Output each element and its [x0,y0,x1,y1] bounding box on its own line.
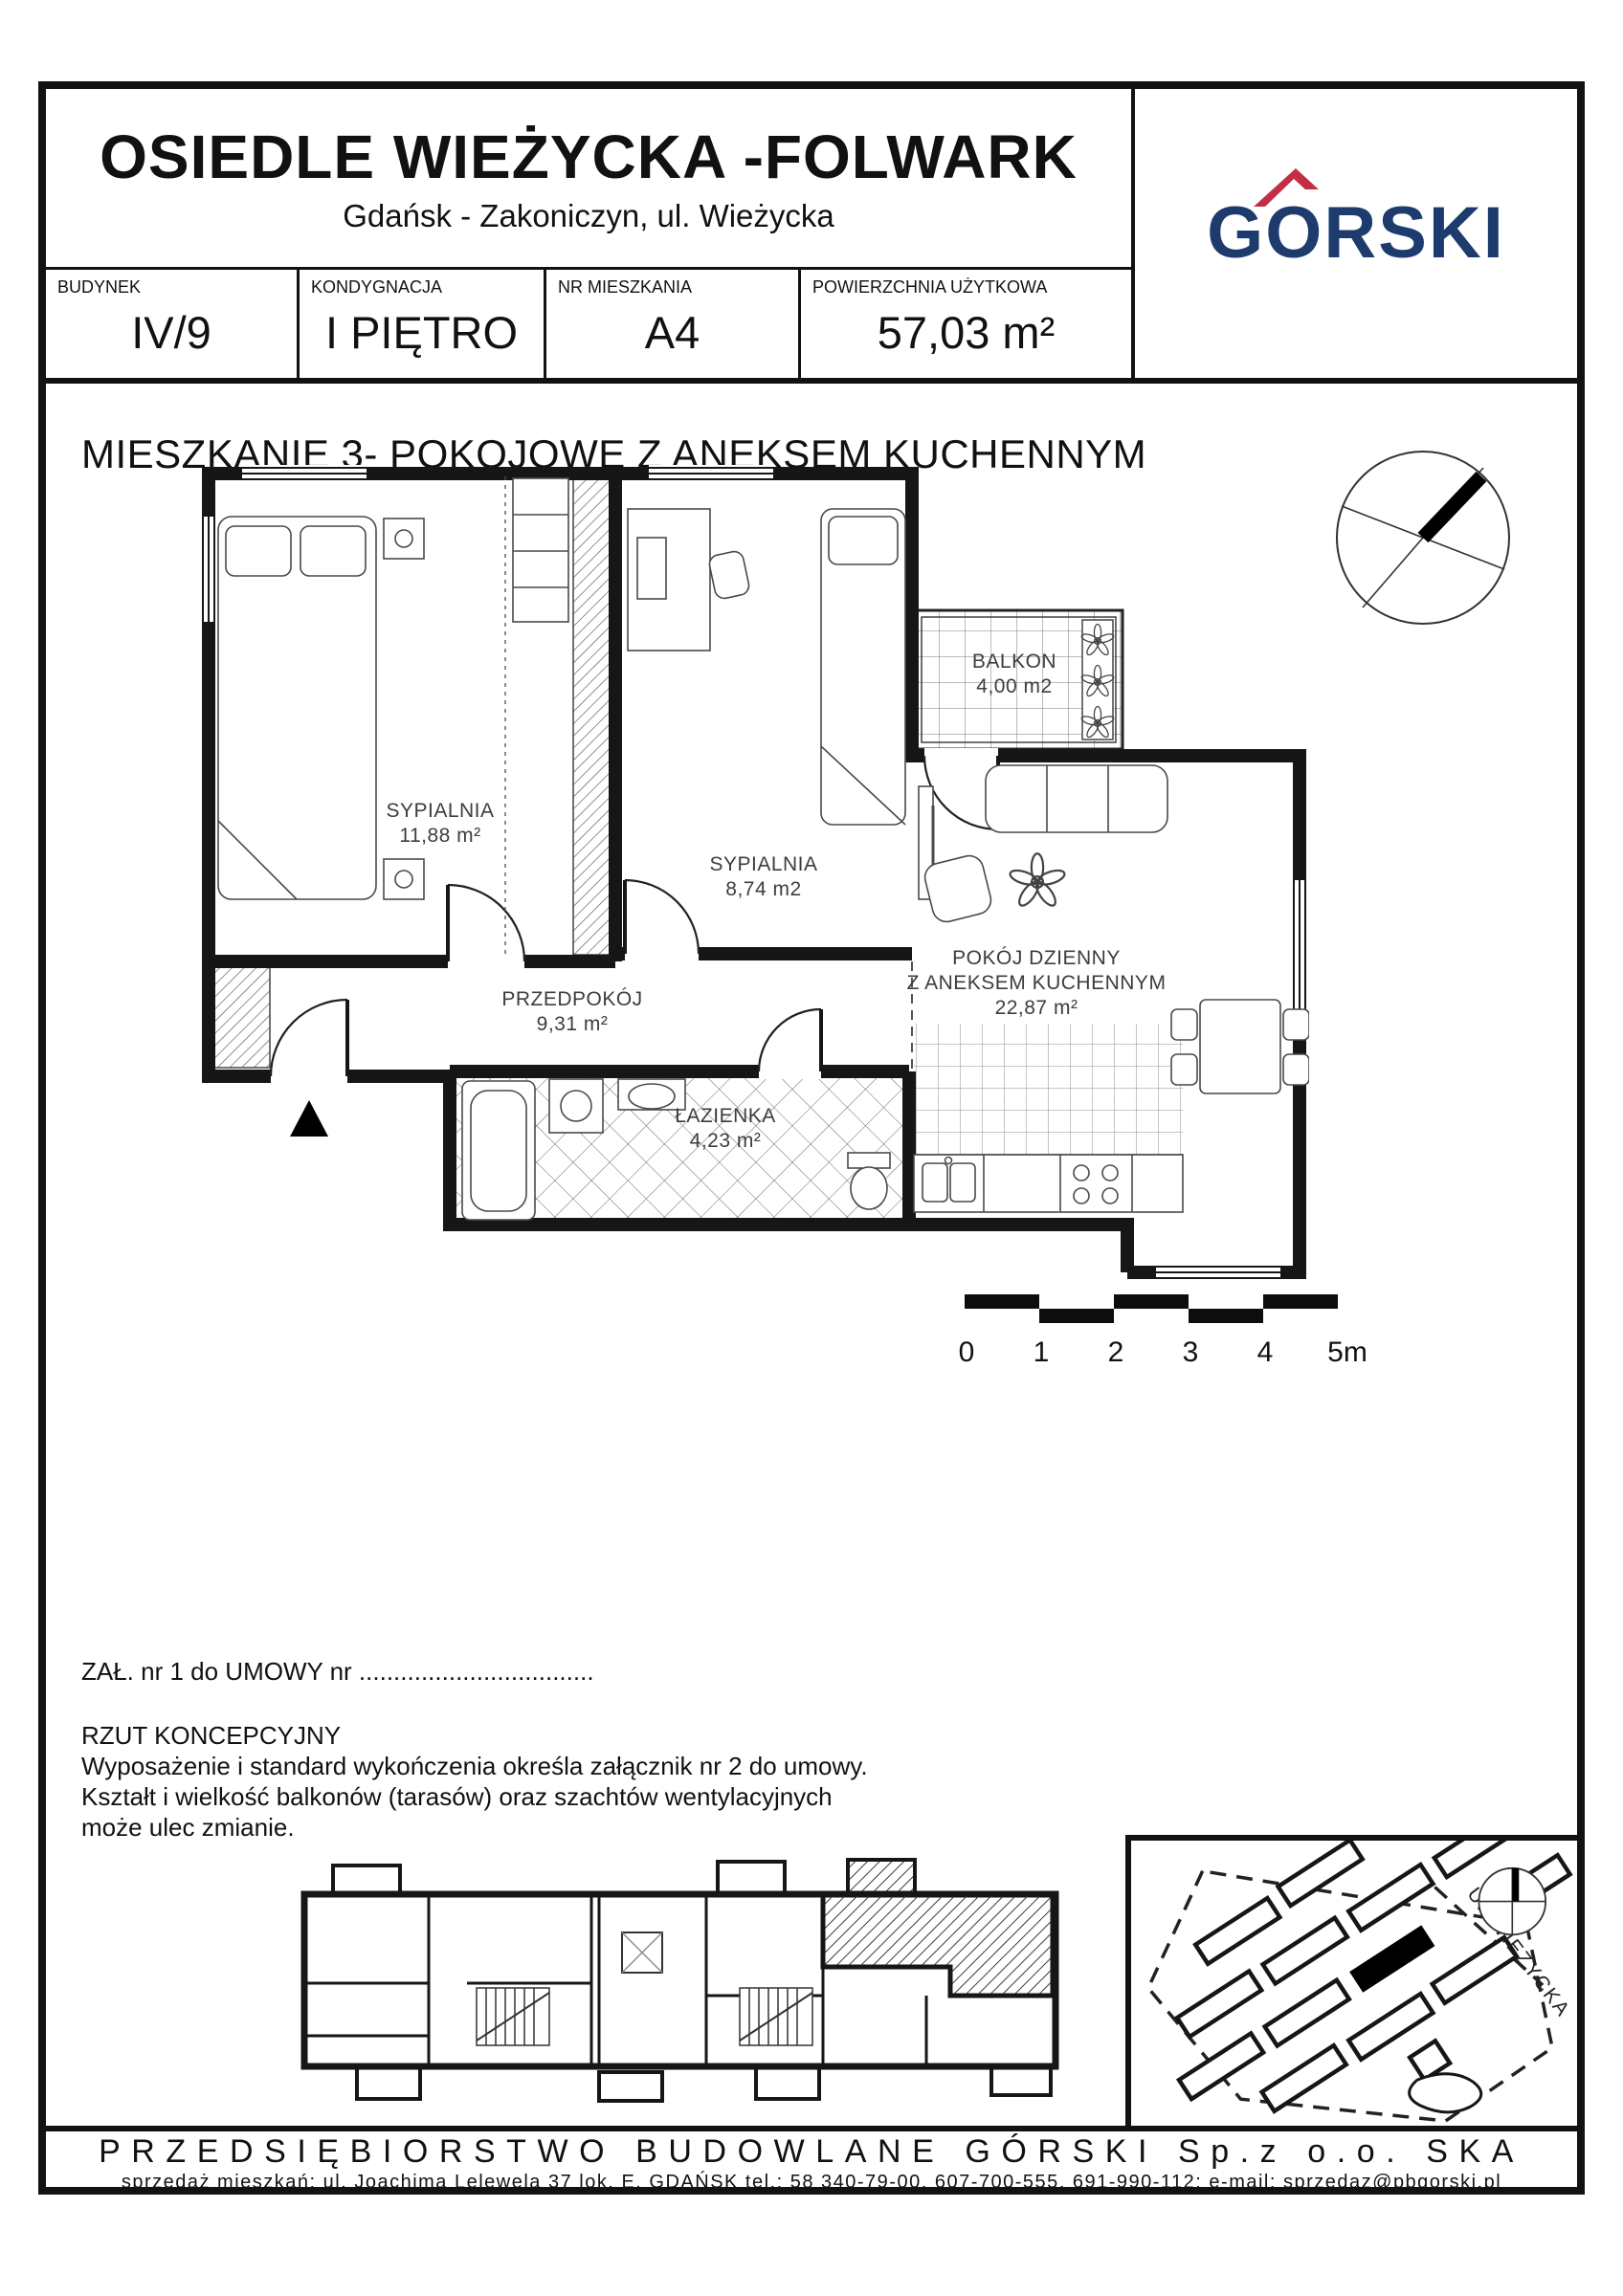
window [1291,880,1308,1024]
double-bed [218,517,424,899]
info-cell-powierzchnia: POWIERZCHNIA UŻYTKOWA 57,03 m² [801,270,1131,378]
room-label: SYPIALNIA [709,853,817,875]
window [649,465,773,482]
toilet [848,1153,890,1209]
page-title: OSIEDLE WIEŻYCKA -FOLWARK [100,121,1078,192]
room-label: BALKON [972,651,1056,673]
concept-note: RZUT KONCEPCYJNY Wyposażenie i standard … [81,1720,868,1843]
hall-wardrobe [212,966,270,1068]
single-bed [821,509,905,825]
room-label: Z ANEKSEM KUCHENNYM [907,972,1167,994]
info-label: NR MIESZKANIA [558,277,692,298]
room-label: POKÓJ DZIENNY [952,947,1121,969]
apartment-floor-plan: SYPIALNIA 11,88 m² SYPIALNIA 8,74 m2 BAL… [189,450,1309,1291]
building-overview-plan [189,1844,1099,2117]
site-map-box: UL.WIEŻYCKA [1125,1835,1583,2131]
room-area: 4,00 m2 [976,675,1052,697]
kitchen-floor [914,1024,1183,1155]
room-label: PRZEDPOKÓJ [501,988,642,1010]
scale-label: 5m [1327,1336,1367,1368]
shelf-unit [513,478,568,622]
page-subtitle: Gdańsk - Zakoniczyn, ul. Wieżycka [343,198,834,234]
footer: PRZEDSIĘBIORSTWO BUDOWLANE GÓRSKI Sp.z o… [46,2126,1577,2193]
wardrobe [573,476,613,955]
compass-icon [1330,445,1516,630]
window [200,517,217,622]
sofa [986,765,1167,832]
attachment-note: ZAŁ. nr 1 do UMOWY nr ..................… [81,1656,594,1687]
company-logo-box: GORSKI [1135,89,1577,378]
highlighted-balcony [848,1860,915,1894]
note-line: Wyposażenie i standard wykończenia okreś… [81,1751,868,1781]
info-value: 57,03 m² [878,306,1055,359]
info-label: KONDYGNACJA [311,277,442,298]
site-map: UL.WIEŻYCKA [1131,1841,1577,2126]
room-label: ŁAZIENKA [675,1105,776,1127]
staircase [740,1988,812,2045]
bedroom1-door [448,885,524,969]
plant-icon [1009,853,1066,908]
entrance-door [271,1000,347,1084]
logo-letter-o: O [1265,197,1323,270]
bathroom-door [759,1009,821,1079]
kitchen-counter [914,1155,1183,1212]
header: OSIEDLE WIEŻYCKA -FOLWARK Gdańsk - Zakon… [46,89,1577,384]
info-value: A4 [645,306,700,359]
scale-bar: 0 1 2 3 4 5m [957,1283,1407,1374]
pond [1410,2074,1481,2112]
window [1156,1264,1280,1281]
info-value: IV/9 [131,306,211,359]
room-area: 4,23 m² [690,1130,762,1152]
window [242,465,367,482]
bedroom2-door [625,880,699,961]
room-area: 9,31 m² [537,1013,609,1035]
room-label: SYPIALNIA [386,800,494,822]
scale-label: 0 [959,1336,975,1368]
info-cell-nr-mieszkania: NR MIESZKANIA A4 [546,270,801,378]
scale-label: 2 [1108,1336,1124,1368]
info-label: POWIERZCHNIA UŻYTKOWA [812,277,1047,298]
info-cell-budynek: BUDYNEK IV/9 [46,270,300,378]
scale-label: 1 [1034,1336,1050,1368]
note-line: Kształt i wielkość balkonów (tarasów) or… [81,1781,868,1812]
staircase [477,1988,549,2045]
room-area: 22,87 m² [995,997,1078,1019]
logo-roof-icon [1252,165,1332,209]
desk [628,509,750,651]
site-compass-icon [1478,1868,1545,1935]
entrance-arrow [290,1100,328,1137]
info-table: BUDYNEK IV/9 KONDYGNACJA I PIĘTRO NR MIE… [46,270,1131,378]
elevator [622,1932,662,1973]
scale-label: 4 [1257,1336,1274,1368]
bathtub [462,1081,535,1220]
logo-letter: RSKI [1323,197,1505,270]
document-frame: OSIEDLE WIEŻYCKA -FOLWARK Gdańsk - Zakon… [38,81,1585,2195]
info-label: BUDYNEK [57,277,141,298]
company-contact: sprzedaż mieszkań: ul. Joachima Lelewela… [46,2172,1577,2193]
company-name: PRZEDSIĘBIORSTWO BUDOWLANE GÓRSKI Sp.z o… [46,2133,1577,2171]
washing-machine [549,1079,603,1133]
scale-label: 3 [1183,1336,1199,1368]
current-building [1349,1925,1434,1992]
header-left: OSIEDLE WIEŻYCKA -FOLWARK Gdańsk - Zakon… [46,89,1135,378]
note-line: RZUT KONCEPCYJNY [81,1720,868,1751]
dining-table [1171,1000,1309,1093]
room-area: 8,74 m2 [725,878,801,900]
title-block: OSIEDLE WIEŻYCKA -FOLWARK Gdańsk - Zakon… [46,89,1131,270]
note-line: może ulec zmianie. [81,1812,868,1843]
room-area: 11,88 m² [399,825,480,847]
document-page: OSIEDLE WIEŻYCKA -FOLWARK Gdańsk - Zakon… [0,0,1623,2296]
gorski-logo: GORSKI [1207,197,1505,270]
info-cell-kondygnacja: KONDYGNACJA I PIĘTRO [300,270,546,378]
info-value: I PIĘTRO [325,306,518,359]
